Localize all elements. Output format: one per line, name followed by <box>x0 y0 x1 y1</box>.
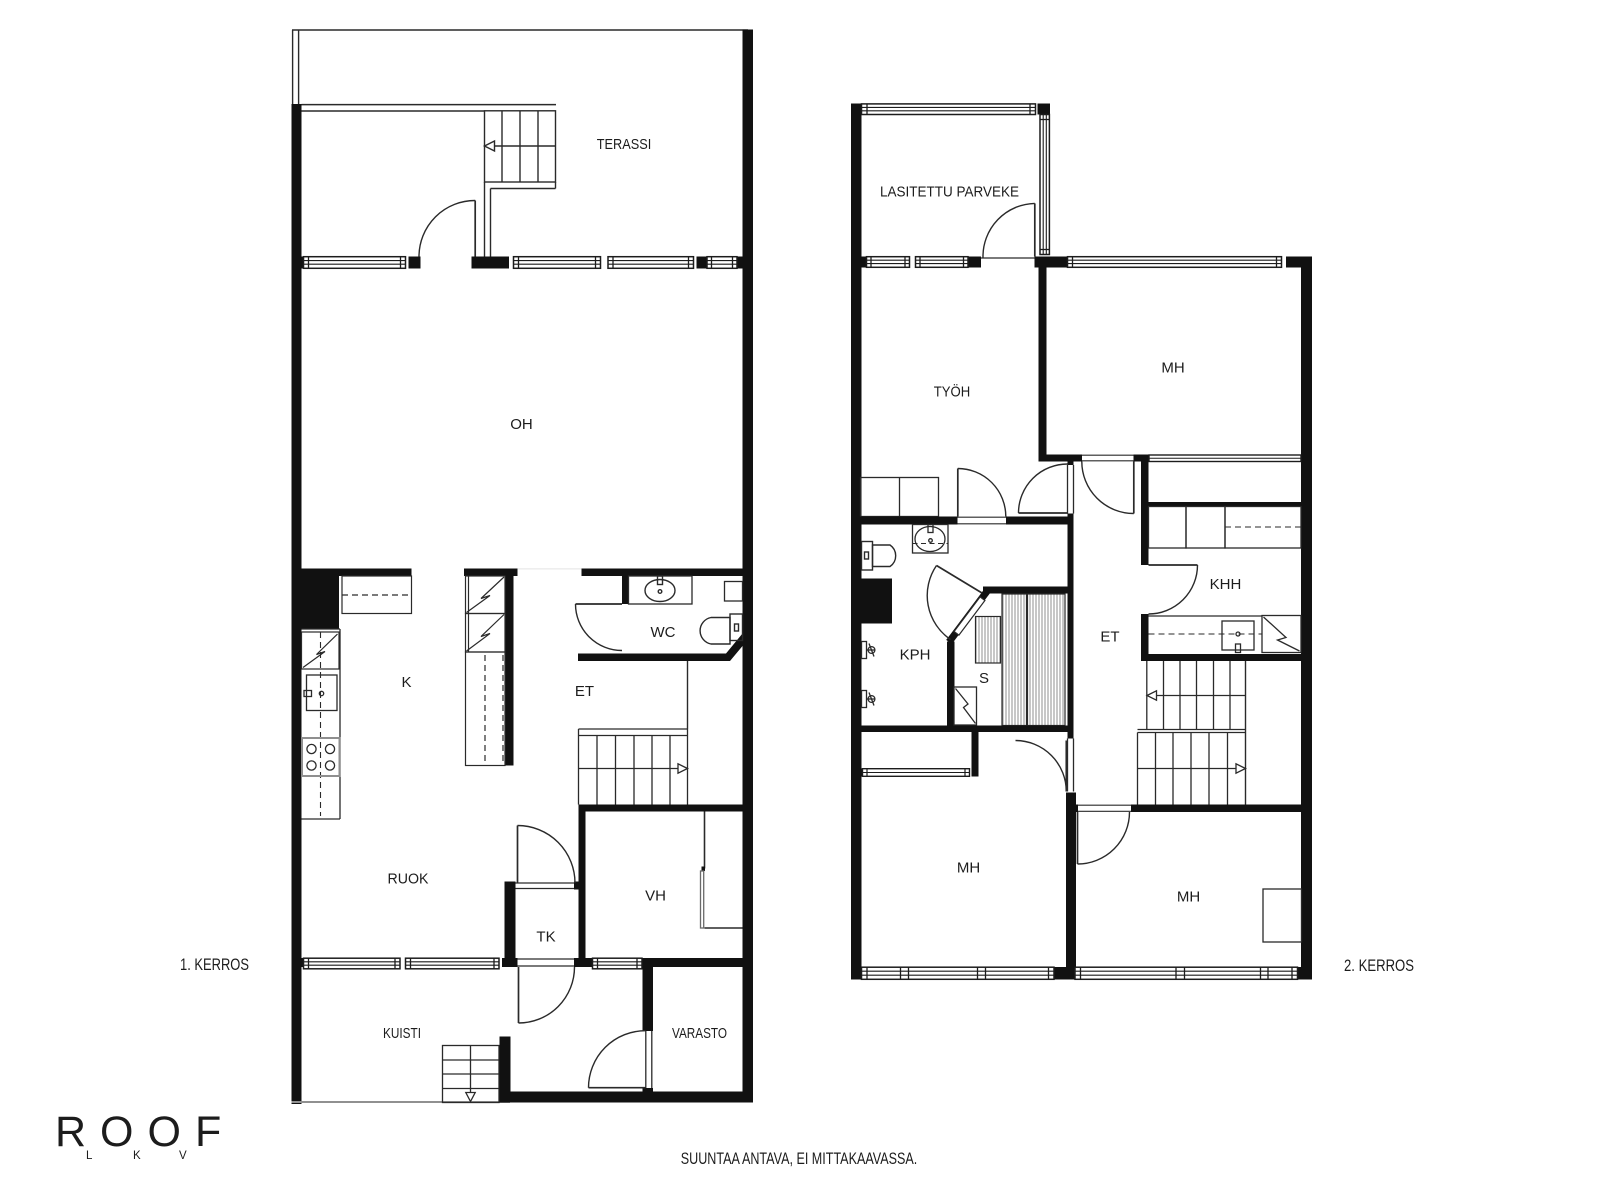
svg-text:KUISTI: KUISTI <box>383 1025 421 1042</box>
svg-text:S: S <box>979 670 989 687</box>
svg-text:KPH: KPH <box>900 647 931 664</box>
svg-text:TYÖH: TYÖH <box>934 383 971 401</box>
svg-text:OH: OH <box>510 416 533 433</box>
svg-text:LASITETTU PARVEKE: LASITETTU PARVEKE <box>880 184 1019 201</box>
svg-text:ET: ET <box>1100 629 1119 646</box>
svg-text:WC: WC <box>651 624 676 641</box>
svg-text:VARASTO: VARASTO <box>672 1025 727 1042</box>
svg-text:V: V <box>179 1150 187 1162</box>
svg-text:TK: TK <box>536 929 555 946</box>
svg-text:MH: MH <box>957 860 980 877</box>
svg-text:TERASSI: TERASSI <box>597 136 652 153</box>
svg-text:MH: MH <box>1161 360 1184 377</box>
svg-text:K: K <box>401 674 411 691</box>
svg-text:ET: ET <box>575 683 594 700</box>
svg-text:L: L <box>86 1150 93 1162</box>
svg-text:KHH: KHH <box>1210 576 1242 593</box>
svg-text:RUOK: RUOK <box>388 871 429 888</box>
svg-text:MH: MH <box>1177 889 1200 906</box>
svg-text:2. KERROS: 2. KERROS <box>1344 956 1414 975</box>
svg-text:ROOF: ROOF <box>55 1108 235 1156</box>
svg-text:VH: VH <box>645 888 666 905</box>
svg-text:1. KERROS: 1. KERROS <box>180 955 249 974</box>
svg-text:SUUNTAA ANTAVA, EI MITTAKAAVAS: SUUNTAA ANTAVA, EI MITTAKAAVASSA. <box>681 1149 918 1168</box>
svg-text:K: K <box>133 1150 141 1162</box>
